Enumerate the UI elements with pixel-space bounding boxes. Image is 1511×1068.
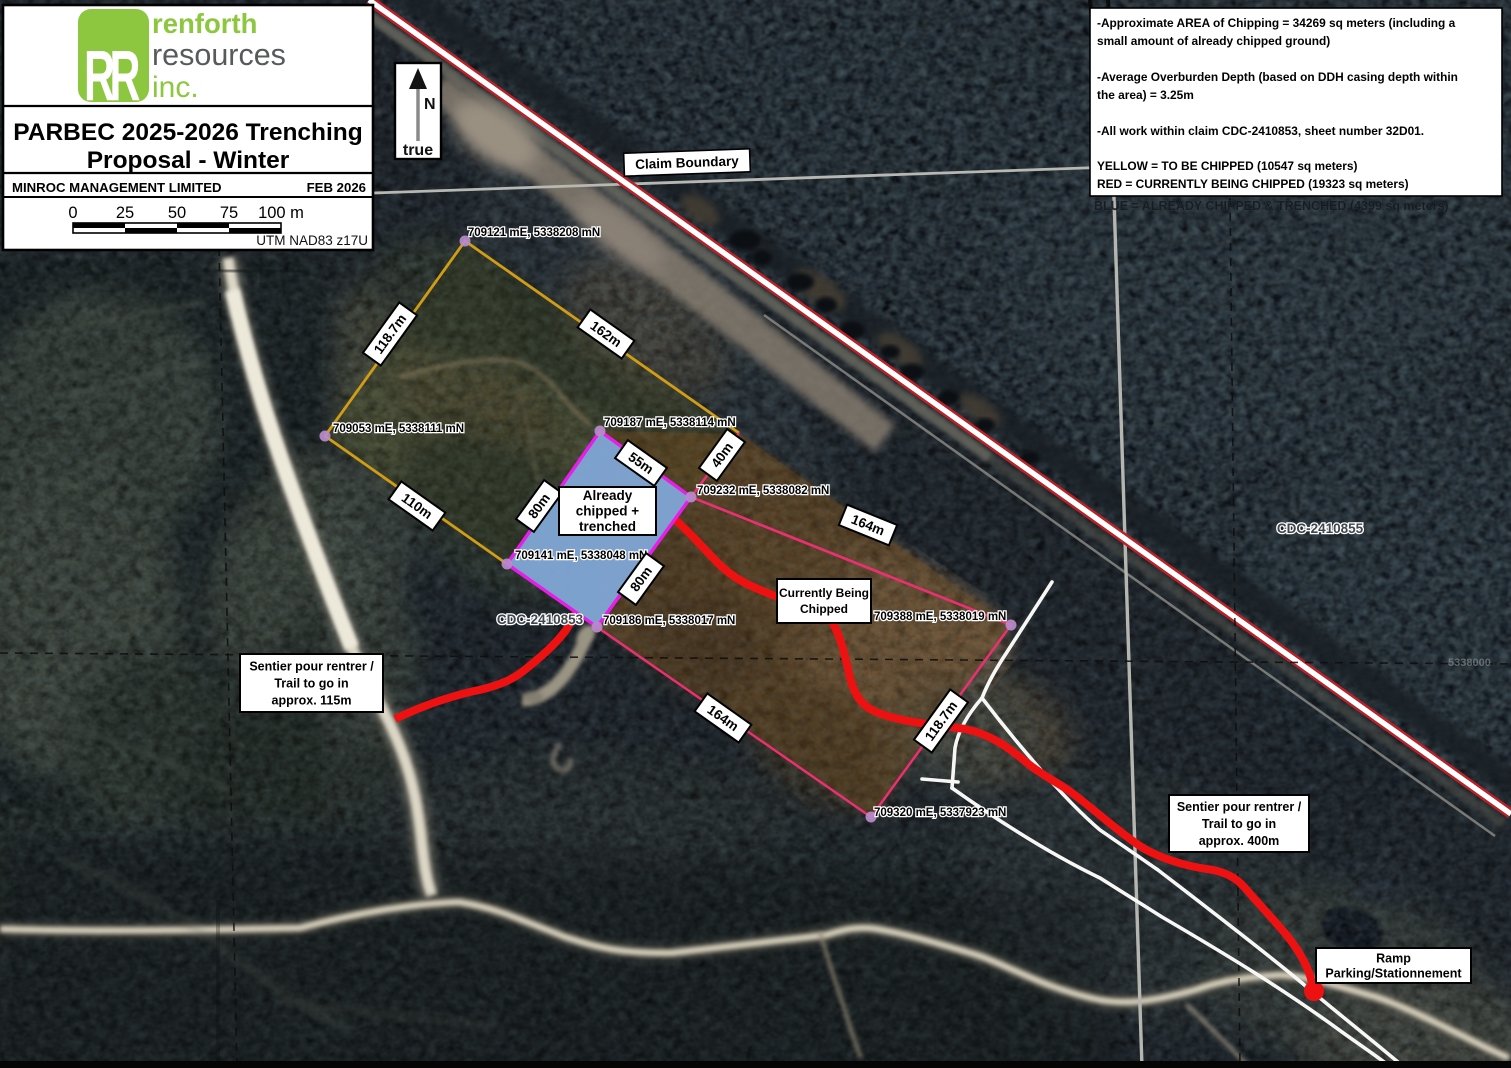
svg-text:709232 mE, 5338082 mN: 709232 mE, 5338082 mN — [697, 485, 829, 497]
svg-text:BLUE = ALREADY CHIPPED & TRENC: BLUE = ALREADY CHIPPED & TRENCHED (4399 … — [1094, 199, 1449, 213]
svg-text:small amount of already chippe: small amount of already chipped ground) — [1097, 34, 1330, 48]
svg-text:0: 0 — [68, 204, 77, 222]
svg-text:Chipped: Chipped — [800, 602, 848, 616]
svg-text:CDC-2410853: CDC-2410853 — [497, 612, 584, 627]
svg-text:YELLOW = TO BE CHIPPED (10547: YELLOW = TO BE CHIPPED (10547 sq meters) — [1097, 159, 1358, 173]
svg-text:709388 mE, 5338019 mN: 709388 mE, 5338019 mN — [874, 611, 1006, 623]
svg-text:RR: RR — [84, 37, 140, 116]
svg-text:75: 75 — [220, 204, 238, 222]
svg-text:Proposal - Winter: Proposal - Winter — [87, 147, 290, 174]
svg-text:renforth: renforth — [152, 8, 257, 39]
svg-text:inc.: inc. — [152, 71, 199, 104]
svg-text:-All work within claim CDC-241: -All work within claim CDC-2410853, shee… — [1097, 124, 1424, 138]
svg-text:approx. 400m: approx. 400m — [1199, 834, 1280, 848]
svg-text:Trail to go in: Trail to go in — [1202, 817, 1276, 831]
svg-text:Already: Already — [583, 488, 633, 503]
svg-text:709053 mE, 5338111 mN: 709053 mE, 5338111 mN — [333, 423, 464, 435]
svg-text:UTM NAD83 z17U: UTM NAD83 z17U — [256, 233, 368, 248]
svg-text:resources: resources — [152, 38, 286, 72]
svg-text:709141 mE, 5338048 mN: 709141 mE, 5338048 mN — [515, 550, 647, 562]
svg-text:MINROC MANAGEMENT LIMITED: MINROC MANAGEMENT LIMITED — [12, 180, 222, 195]
svg-text:FEB 2026: FEB 2026 — [307, 180, 366, 195]
svg-text:709187 mE, 5338114 mN: 709187 mE, 5338114 mN — [604, 417, 736, 429]
svg-text:25: 25 — [116, 204, 134, 222]
svg-text:709186 mE, 5338017 mN: 709186 mE, 5338017 mN — [603, 615, 735, 627]
svg-text:709320 mE, 5337923 mN: 709320 mE, 5337923 mN — [874, 807, 1006, 819]
svg-text:5338000: 5338000 — [1448, 657, 1491, 669]
svg-text:approx. 115m: approx. 115m — [272, 693, 352, 707]
svg-text:trenched: trenched — [579, 519, 636, 534]
svg-text:CDC-2410855: CDC-2410855 — [1277, 521, 1364, 536]
svg-text:N: N — [424, 96, 436, 113]
svg-text:the area) = 3.25m: the area) = 3.25m — [1097, 88, 1194, 102]
svg-text:Parking/Stationnement: Parking/Stationnement — [1325, 966, 1462, 980]
svg-text:Currently Being: Currently Being — [779, 586, 869, 600]
svg-text:PARBEC 2025-2026 Trenching: PARBEC 2025-2026 Trenching — [13, 119, 362, 146]
svg-text:709121 mE, 5338208 mN: 709121 mE, 5338208 mN — [468, 227, 600, 239]
svg-text:Sentier pour rentrer /: Sentier pour rentrer / — [1177, 800, 1302, 814]
svg-text:RED = CURRENTLY BEING CHIPPED: RED = CURRENTLY BEING CHIPPED (19323 sq … — [1097, 177, 1409, 191]
svg-text:100 m: 100 m — [258, 204, 304, 222]
svg-text:-Average Overburden Depth (bas: -Average Overburden Depth (based on DDH … — [1097, 70, 1458, 84]
svg-text:Sentier pour rentrer /: Sentier pour rentrer / — [249, 659, 374, 673]
svg-text:Trail to go in: Trail to go in — [274, 676, 348, 690]
svg-text:true: true — [403, 142, 433, 159]
svg-text:chipped +: chipped + — [576, 504, 640, 519]
svg-text:-Approximate AREA of Chipping: -Approximate AREA of Chipping = 34269 sq… — [1097, 16, 1456, 30]
svg-text:Ramp: Ramp — [1376, 951, 1411, 965]
svg-text:50: 50 — [168, 204, 186, 222]
